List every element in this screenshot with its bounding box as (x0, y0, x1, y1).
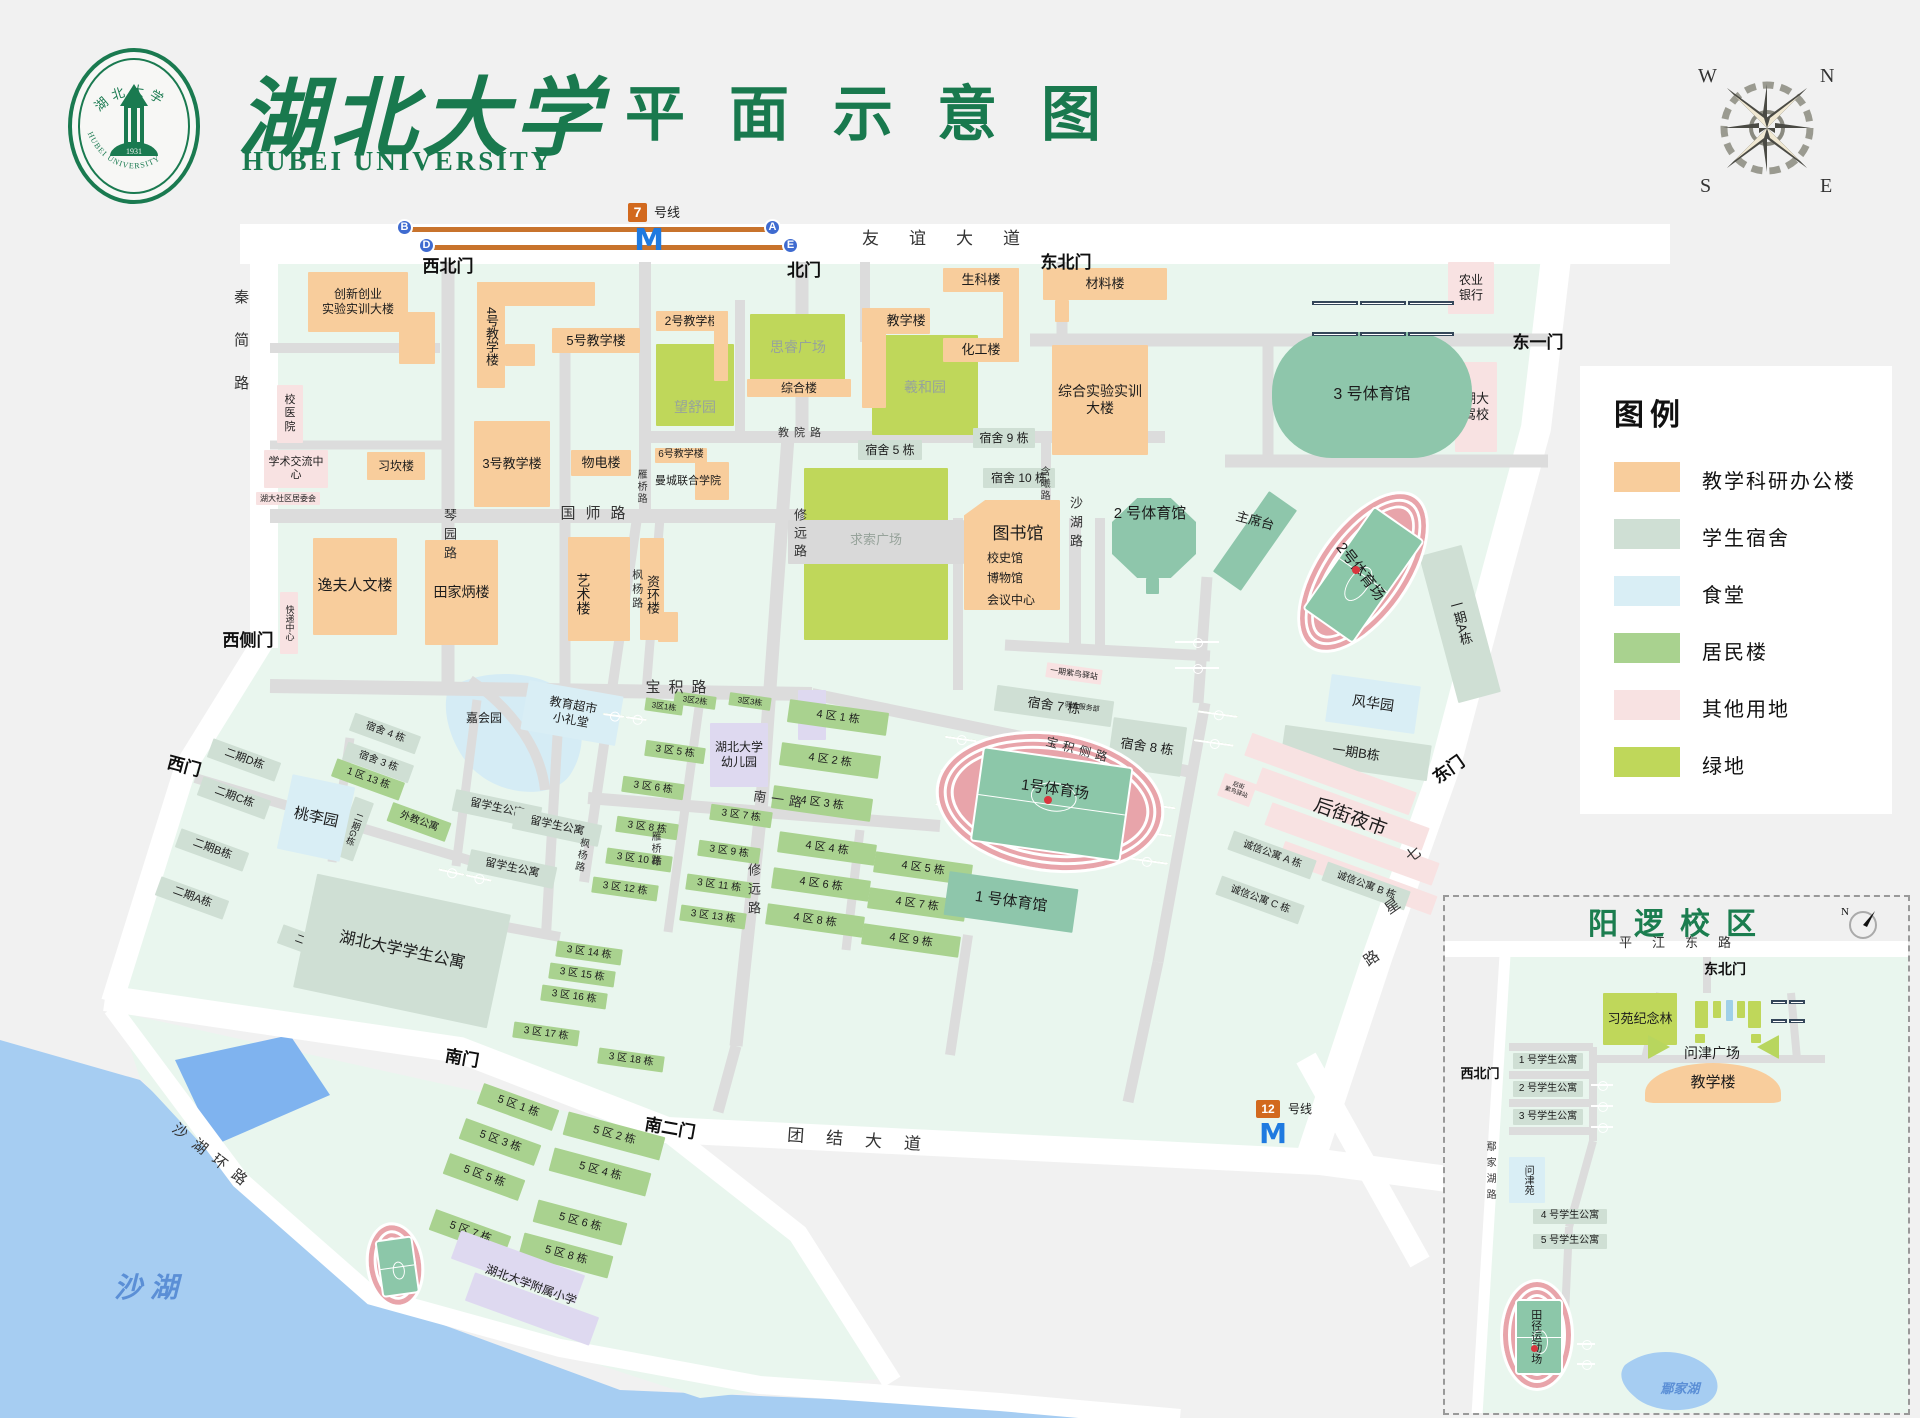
legend-title: 图例 (1614, 390, 1686, 434)
bldg-teach5: 5号教学楼 (552, 328, 640, 353)
compass-e: E (1820, 175, 1832, 197)
road-label-qinyuanlu: 琴园路 (440, 505, 458, 567)
inset-label-wenjin-plaza: 问津广场 (1667, 1045, 1757, 1063)
compass-w: W (1698, 65, 1717, 87)
bcourts-yiqi-court (1194, 739, 1234, 747)
legend-label-4: 其他用地 (1702, 693, 1790, 722)
university-seal-logo: 湖北大学 HUBEI UNIVERSITY 1931 (64, 44, 204, 208)
courts-tennis-main-court (1312, 301, 1358, 305)
page-title-en: HUBEI UNIVERSITY (242, 146, 553, 177)
inset-courts-tennis (1771, 993, 1805, 1029)
legend-label-5: 绿地 (1702, 750, 1746, 779)
sport-gym3: 3 号体育馆 (1272, 332, 1472, 458)
bldg-wudianlou: 物电楼 (571, 450, 631, 476)
inset-plaza-b4 (1748, 1001, 1761, 1028)
inset-plaza-tri-right (1757, 1035, 1779, 1059)
inset-compass-icon: N (1837, 901, 1881, 945)
legend-label-2: 食堂 (1702, 579, 1746, 608)
compass-rose-icon: W N S E (1692, 46, 1842, 206)
gate-dongbeimen: 东北门 (1028, 252, 1104, 274)
legend-swatch-3 (1614, 633, 1680, 663)
bldg-kuaidi: 快递中心 (280, 592, 298, 654)
metro7-line-upper (404, 227, 772, 232)
bldg-zhsysx: 综合实验实训大楼 (1052, 345, 1148, 455)
dorm-5: 宿舍 5 栋 (858, 440, 922, 460)
road-label-jiaoyuanlu: 教院路 (770, 426, 834, 442)
inset-gate-dongbeimen: 东北门 (1693, 961, 1757, 979)
courts-tennis-main (1312, 288, 1454, 348)
courts-tennis-main-court (1360, 301, 1406, 305)
inset-courts-tennis-court (1789, 1019, 1805, 1023)
dot-stadium2 (1352, 566, 1360, 574)
inset-dorm-3: 3 号学生公寓 (1513, 1109, 1583, 1125)
label-shahu: 沙湖 (100, 1268, 200, 1308)
inset-dot-track (1531, 1345, 1538, 1352)
inset-bcourts (1591, 1075, 1613, 1137)
inset-label-yanjiahu: 鄢家湖 (1640, 1379, 1720, 1399)
sport-gym2-stem (1146, 578, 1159, 594)
inset-courts-tennis-court (1771, 1019, 1787, 1023)
label-gym2: 2 号体育馆 (1100, 505, 1200, 523)
inset-plaza-b5 (1695, 1034, 1705, 1043)
legend-swatch-4 (1614, 690, 1680, 720)
bldg-teach4-hook (505, 344, 535, 366)
label-bowuguan: 博物馆 (980, 570, 1030, 586)
road-label-xiuyuanlu-n: 修远路 (790, 505, 808, 565)
lav-youeryuan: 湖北大学 幼儿园 (710, 723, 768, 787)
seal-year: 1931 (126, 147, 142, 156)
track-southwest-field (374, 1235, 420, 1298)
inset-compass-n: N (1841, 906, 1849, 918)
bldg-tianjiabing: 田家炳楼 (425, 540, 498, 645)
courts-tennis-main-court (1408, 332, 1454, 336)
legend-label-3: 居民楼 (1702, 636, 1768, 665)
bcourts-3qu-court (603, 713, 624, 718)
bcourts-3qu (601, 697, 649, 737)
metro7-station-a: A (764, 219, 781, 236)
legend-label-0: 教学科研办公楼 (1702, 465, 1856, 494)
compass-s: S (1700, 175, 1711, 197)
inset-bcourts-court (1591, 1126, 1613, 1128)
label-mancheng: 曼城联合学院 (648, 474, 728, 490)
inset-dorm-2: 2 号学生公寓 (1513, 1081, 1583, 1097)
courts-tennis-main-court (1408, 301, 1454, 305)
label-huiyizhongxin: 会议中心 (980, 592, 1042, 608)
bldg-teach2-col (714, 311, 728, 381)
road-label-baojilu: 宝积路 (640, 678, 720, 698)
inset-dorm-4: 4 号学生公寓 (1533, 1209, 1607, 1224)
label-wangshuyuan: 望舒园 (660, 398, 730, 418)
road-label-youyidadao: 友谊大道 (856, 228, 1056, 250)
bcourts-taoliyuan-court (466, 874, 492, 881)
inset-dorm-1: 1 号学生公寓 (1513, 1053, 1583, 1069)
gate-xicemen: 西侧门 (216, 630, 280, 652)
metro7-logo: M (634, 224, 664, 258)
road-label-yanqiaolu-n: 雁桥路 (632, 462, 648, 512)
legend-swatch-0 (1614, 462, 1680, 492)
compass-n: N (1820, 65, 1834, 87)
bldg-teach6: 6号教学楼 (655, 448, 707, 463)
inset-courts-tennis-court (1789, 1000, 1805, 1004)
bldg-xueshu: 学术交流中心 (264, 450, 328, 488)
inset-plaza-pool (1726, 1000, 1733, 1021)
bldg-huagong: 化工楼 (943, 338, 1019, 362)
legend-swatch-5 (1614, 747, 1680, 777)
bldg-teach1-col (862, 308, 886, 408)
page-title-map: 平面示意图 (625, 66, 1145, 153)
metro7-station-d: D (418, 237, 435, 254)
inset-courts-tennis-court (1771, 1000, 1787, 1004)
inset-bcourts-court (1591, 1084, 1613, 1086)
road-label-xiuyuanlu-s: 修远路 (744, 858, 762, 924)
bcourts-library-east-court (1175, 641, 1219, 643)
legend-swatch-2 (1614, 576, 1680, 606)
metro7-station-e: E (782, 237, 799, 254)
courts-tennis-main-court (1360, 332, 1406, 336)
label-library: 图书馆 (986, 524, 1050, 544)
road-label-qinjianlu: 秦简路 (230, 278, 250, 428)
bldg-shequ: 湖大社区居委会 (256, 492, 320, 505)
bldg-chuangxin-wing (399, 312, 435, 364)
dorm-9: 宿舍 9 栋 (973, 428, 1035, 448)
inset-road-pingjiangdonglu: 平江东路 (1575, 935, 1795, 951)
campus-map-page: 湖北大学 HUBEI UNIVERSITY 1931 湖北大学 HUBEI UN… (0, 0, 1920, 1418)
dot-stadium1 (1044, 796, 1052, 804)
road-label-hanxilu: 含曦路 (1036, 460, 1050, 508)
inset-courts-small-court (1577, 1343, 1595, 1345)
label-zihuanlou: 资环楼 (641, 552, 663, 636)
bldg-nongyeyinhang: 农业 银行 (1448, 262, 1494, 314)
bldg-teach3: 3号教学楼 (474, 421, 550, 507)
gate-dongyimen: 东一门 (1506, 332, 1570, 354)
metro7-line-lower (426, 245, 794, 250)
metro12-badge: 12 (1256, 1100, 1280, 1118)
metro7-station-b: B (396, 219, 413, 236)
bldg-yifu: 逸夫人文楼 (313, 538, 397, 635)
road-label-yanqiaolu-s: 雁桥路 (646, 822, 662, 876)
bcourts-4qu-court (945, 736, 977, 742)
legend-label-1: 学生宿舍 (1702, 522, 1790, 551)
bcourts-yiqi (1192, 697, 1239, 758)
bldg-zonghelou: 综合楼 (747, 379, 851, 397)
inset-yangluo-campus: N 阳逻校区平江东路东北门西北门习苑纪念林问津广场教学楼1 号学生公寓2 号学生… (1443, 895, 1910, 1415)
label-siruiplaza: 思睿广场 (762, 338, 834, 358)
label-teach4: 4号教学楼 (478, 286, 504, 388)
gate-beimen: 北门 (778, 260, 830, 282)
inset-courts-small-court (1577, 1363, 1595, 1365)
courts-tennis-main-court (1312, 332, 1358, 336)
inset-plaza-b1 (1695, 1001, 1708, 1028)
bcourts-taoliyuan-court (438, 868, 464, 875)
road-label-shahulu: 沙湖路 (1066, 488, 1084, 560)
inset-courts-small (1577, 1335, 1595, 1373)
bldg-chuangxin: 创新创业 实验实训大楼 (308, 272, 408, 332)
metro7-badge: 7 (628, 203, 647, 222)
bcourts-library-east-court (1175, 667, 1219, 669)
bldg-cailiao-leg (1055, 300, 1069, 322)
bldg-xikanlou: 习坎楼 (367, 452, 425, 480)
legend-swatch-1 (1614, 519, 1680, 549)
label-yishulou: 艺术楼 (572, 552, 594, 636)
inset-dorm-5: 5 号学生公寓 (1533, 1234, 1607, 1249)
inset-label-track: 田径运动场 (1525, 1295, 1545, 1377)
label-qiusuo: 求索广场 (840, 530, 912, 550)
metro7-suffix: 号线 (650, 204, 684, 222)
legend-panel: 图例 教学科研办公楼学生宿舍食堂居民楼其他用地绿地 (1580, 366, 1892, 814)
bcourts-3qu-court (626, 716, 647, 721)
bcourts-yiqi-court (1198, 710, 1238, 718)
road-label-fengyanglu-n: 枫杨路 (628, 560, 644, 620)
bcourts-library-east (1175, 630, 1219, 680)
inset-road-yanjiahulu: 鄢家湖路 (1481, 1133, 1497, 1213)
label-xiheyuan: 羲和园 (890, 378, 960, 398)
inset-canteen-wenjinyuan: 问津苑 (1509, 1157, 1545, 1203)
label-jiahuiyuan: 嘉会园 (458, 710, 510, 726)
inset-bcourts-court (1591, 1105, 1613, 1107)
metro12-logo: M (1258, 1118, 1288, 1150)
inset-gate-xibeimen: 西北门 (1451, 1065, 1509, 1083)
inset-plaza-b2 (1713, 1001, 1721, 1018)
inset-plaza-b3 (1737, 1001, 1745, 1018)
metro12-suffix: 号线 (1284, 1101, 1316, 1117)
bldg-xiaoyiyuan: 校 医 院 (277, 385, 303, 443)
label-xiaoshiguan: 校史馆 (980, 550, 1030, 566)
gate-xibeimen: 西北门 (410, 256, 486, 278)
